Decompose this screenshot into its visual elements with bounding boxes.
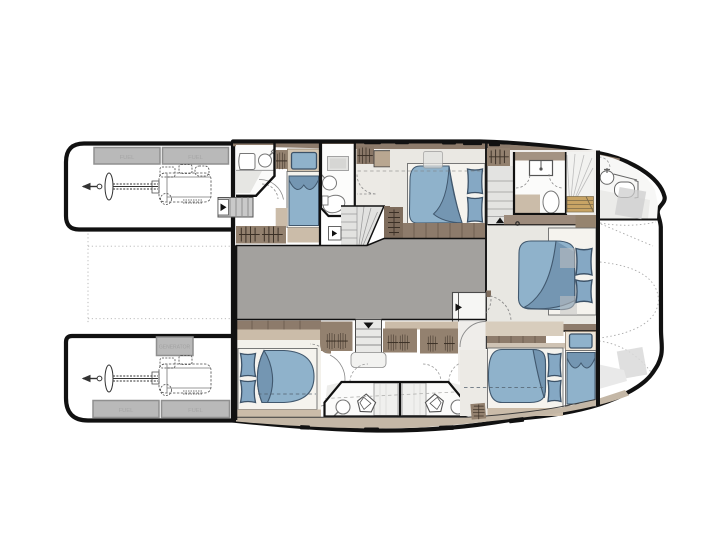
svg-text:FUEL: FUEL: [120, 155, 136, 161]
svg-text:GENERATOR: GENERATOR: [159, 345, 191, 351]
svg-text:FUEL: FUEL: [188, 408, 204, 414]
svg-text:FUEL: FUEL: [119, 408, 135, 414]
svg-text:FUEL: FUEL: [188, 155, 204, 161]
